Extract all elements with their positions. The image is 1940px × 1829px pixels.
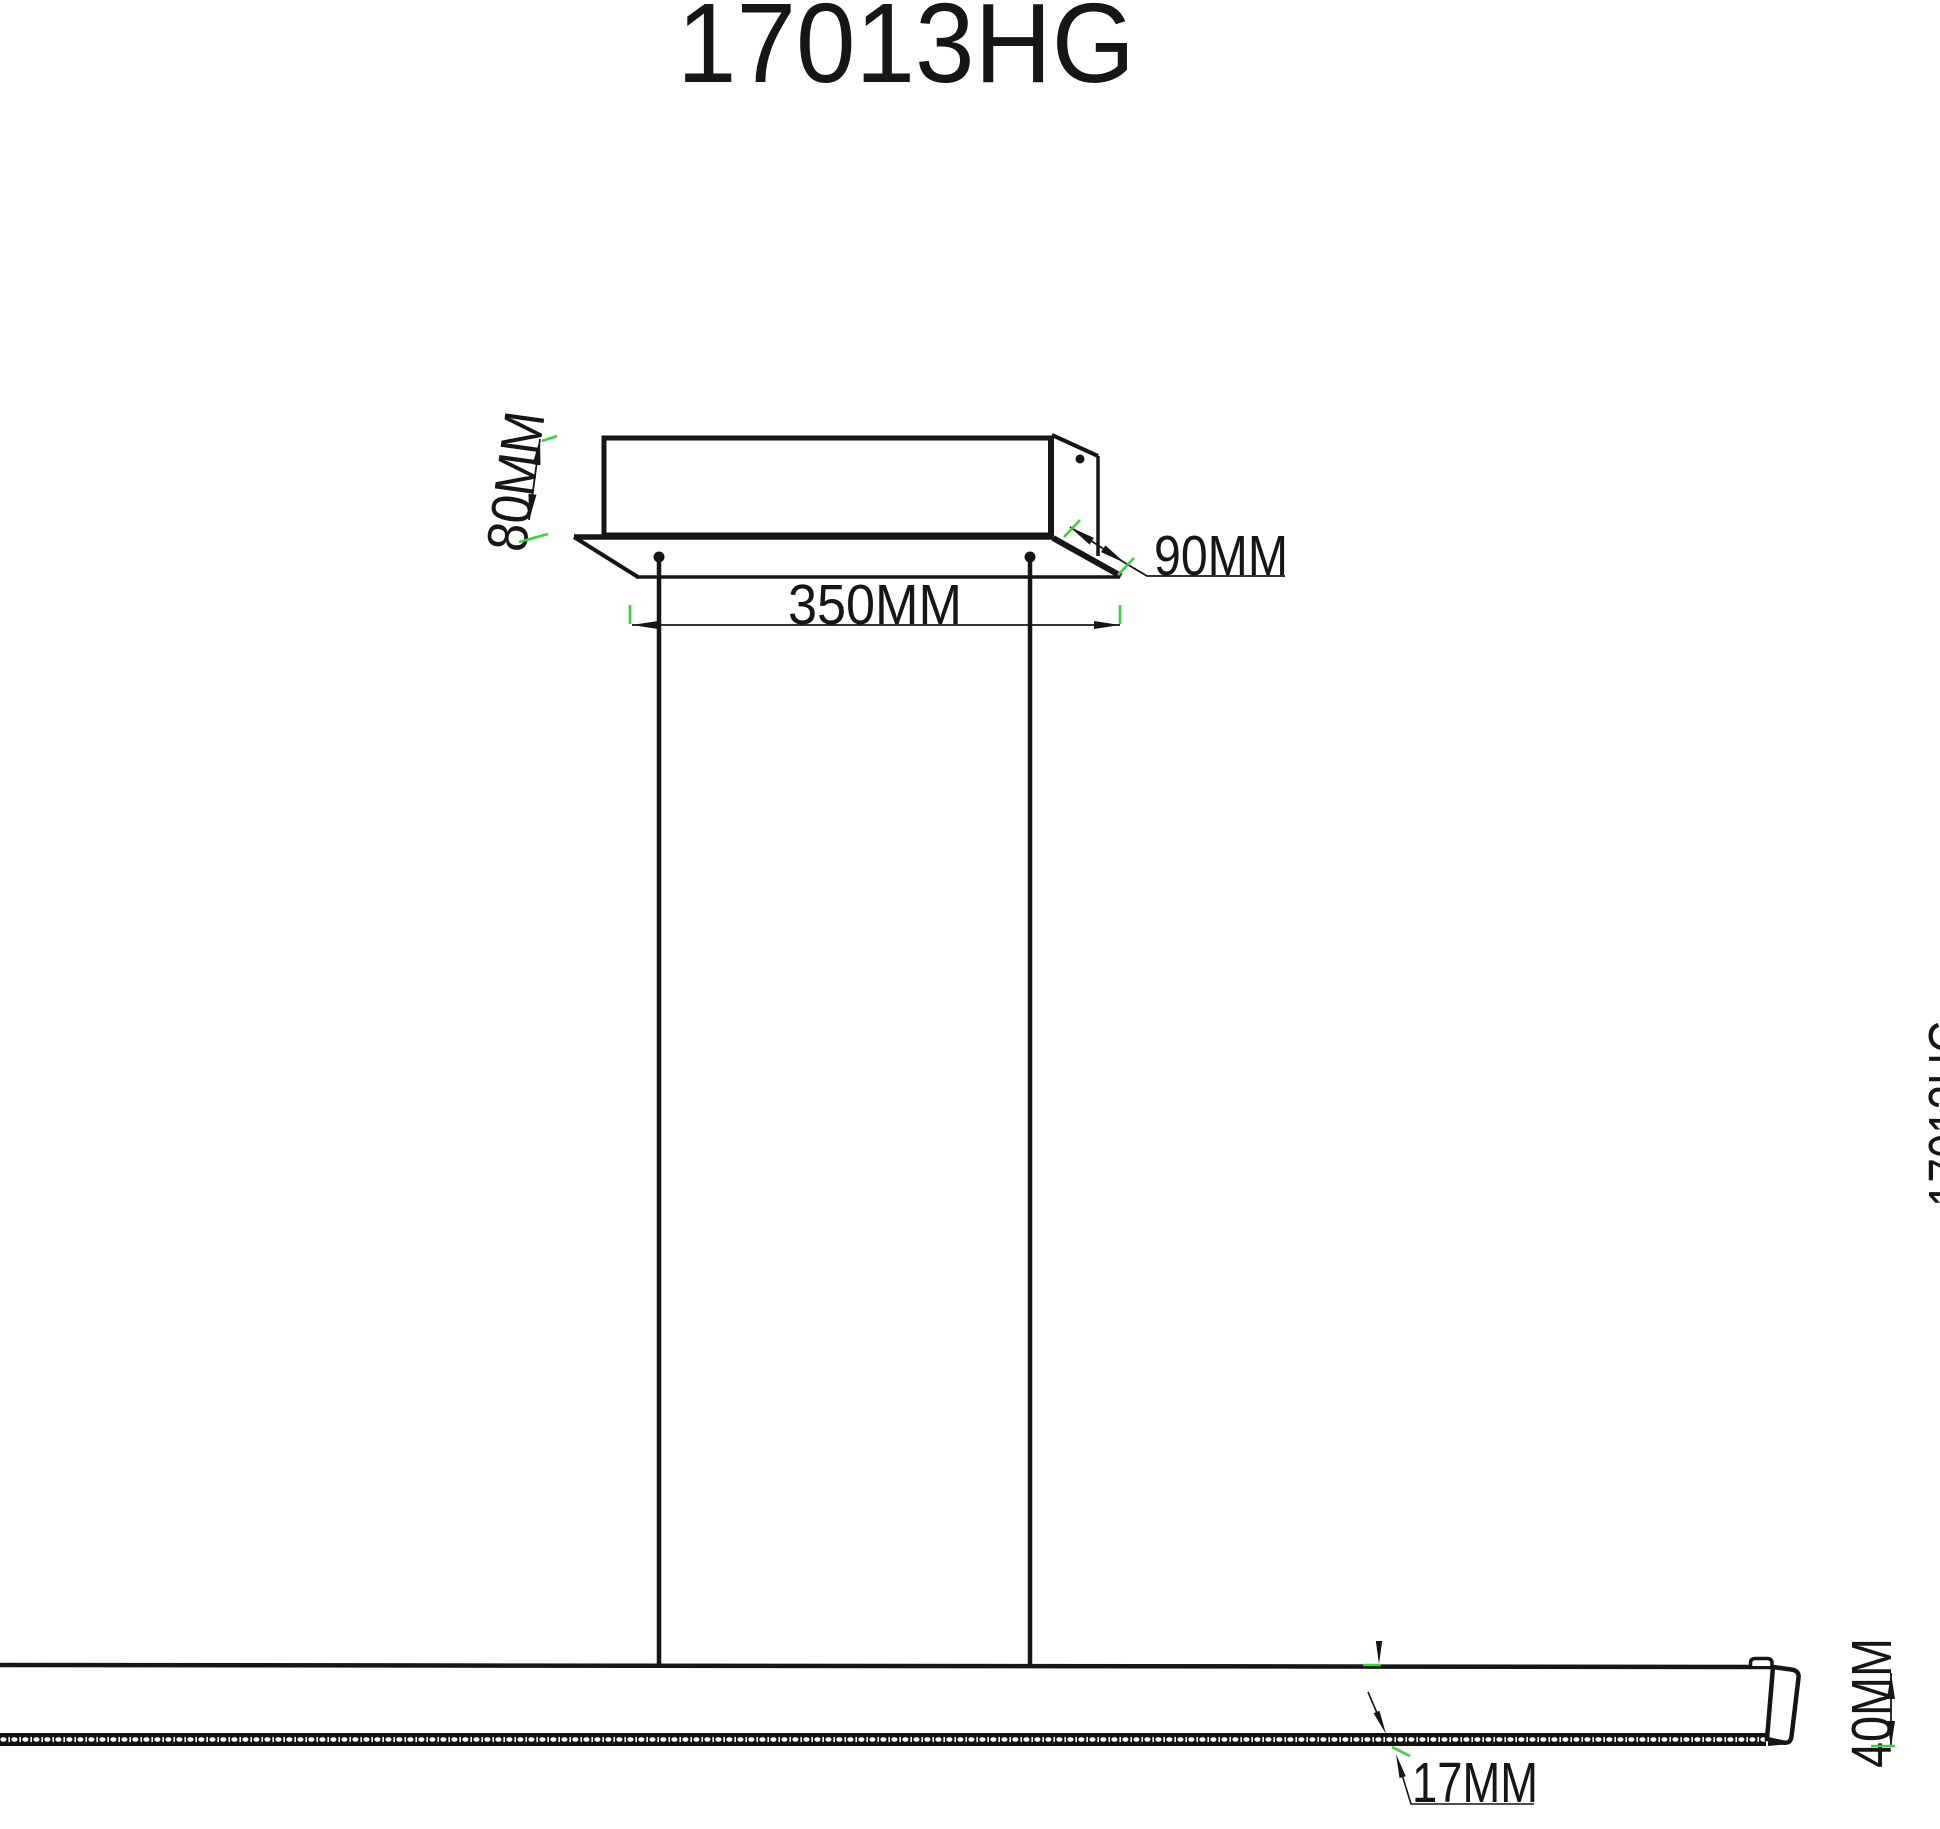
svg-text:40MM: 40MM	[1840, 1638, 1904, 1768]
svg-text:17MM: 17MM	[1412, 1751, 1538, 1815]
svg-text:90MM: 90MM	[1154, 524, 1288, 588]
svg-text:17013HG: 17013HG	[1917, 1019, 1940, 1207]
svg-text:350MM: 350MM	[788, 573, 962, 637]
svg-text:17013HG: 17013HG	[677, 0, 1135, 106]
